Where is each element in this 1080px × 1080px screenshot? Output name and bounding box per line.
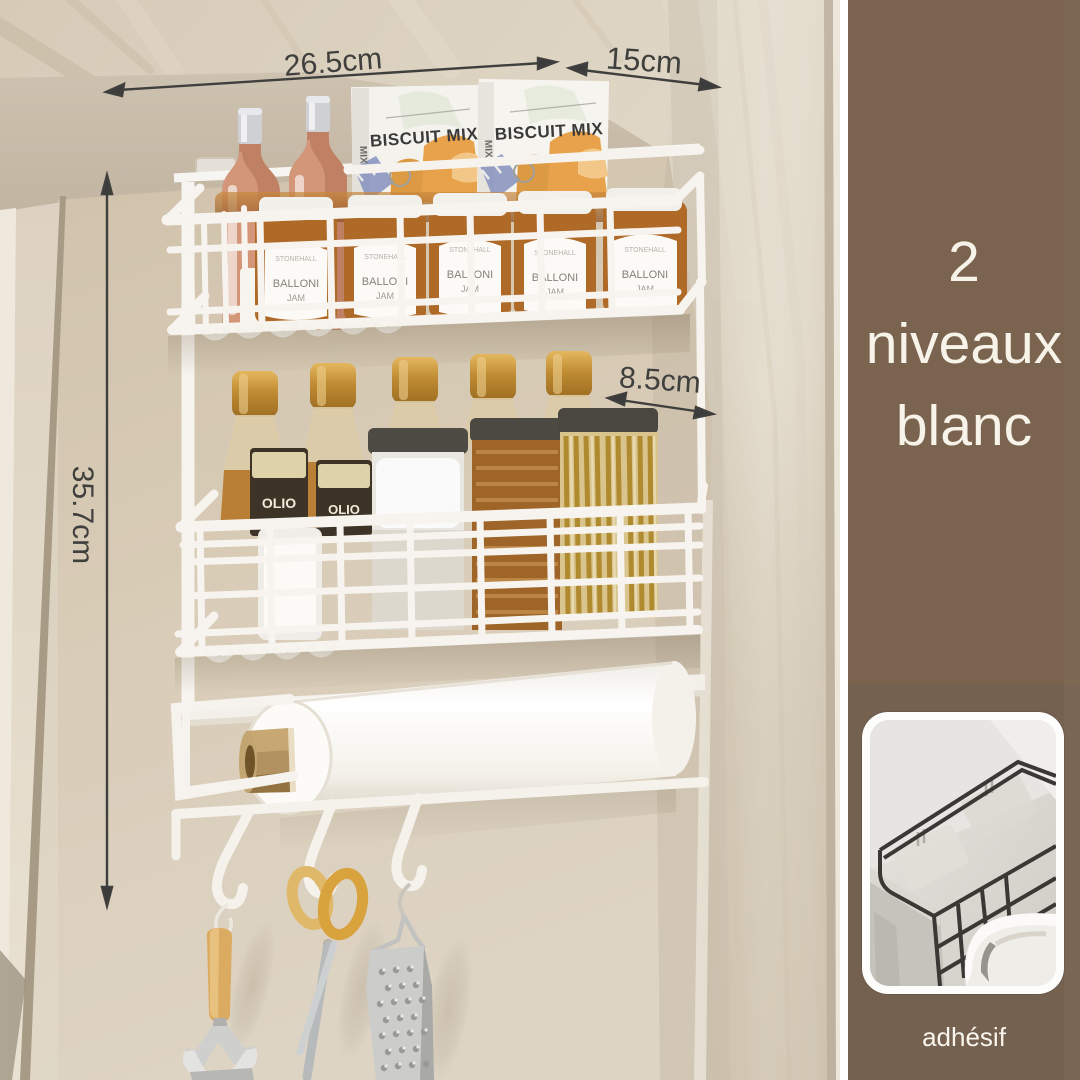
svg-text:15cm: 15cm [605,40,683,80]
svg-text:BALLONI: BALLONI [273,278,319,290]
svg-text:STONEHALL: STONEHALL [624,247,666,254]
svg-text:8.5cm: 8.5cm [618,361,702,400]
svg-text:JAM: JAM [376,291,394,301]
svg-text:OLIO: OLIO [328,502,360,517]
svg-text:OLIO: OLIO [262,495,296,511]
svg-text:STONEHALL: STONEHALL [275,256,317,263]
svg-text:MIX: MIX [482,140,494,158]
svg-text:BALLONI: BALLONI [622,269,668,281]
svg-text:35.7cm: 35.7cm [66,466,99,564]
svg-text:JAM: JAM [287,293,305,303]
svg-text:MIX: MIX [357,146,369,164]
